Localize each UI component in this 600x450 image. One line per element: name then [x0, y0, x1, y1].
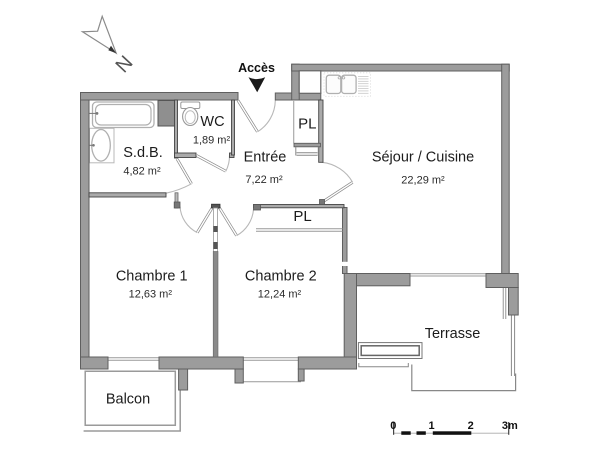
svg-text:1: 1	[429, 420, 435, 432]
svg-text:3m: 3m	[502, 420, 518, 432]
svg-text:2: 2	[468, 420, 474, 432]
svg-text:22,29 m²: 22,29 m²	[401, 175, 445, 187]
svg-text:Accès: Accès	[238, 61, 275, 75]
svg-text:12,63 m²: 12,63 m²	[129, 289, 173, 301]
svg-text:1,89 m²: 1,89 m²	[193, 135, 231, 147]
svg-text:0: 0	[390, 420, 396, 432]
svg-text:7,22 m²: 7,22 m²	[245, 174, 283, 186]
svg-text:WC: WC	[200, 114, 224, 130]
svg-text:Entrée: Entrée	[244, 150, 287, 166]
svg-text:PL: PL	[293, 208, 311, 225]
svg-text:12,24 m²: 12,24 m²	[258, 289, 302, 301]
svg-text:Balcon: Balcon	[106, 391, 150, 407]
svg-text:PL: PL	[298, 115, 316, 132]
svg-text:S.d.B.: S.d.B.	[123, 145, 163, 161]
svg-text:4,82 m²: 4,82 m²	[123, 166, 161, 178]
svg-text:Séjour / Cuisine: Séjour / Cuisine	[372, 150, 474, 166]
svg-text:Terrasse: Terrasse	[425, 326, 481, 342]
svg-text:Chambre 1: Chambre 1	[116, 269, 188, 285]
svg-text:Chambre 2: Chambre 2	[245, 269, 317, 285]
